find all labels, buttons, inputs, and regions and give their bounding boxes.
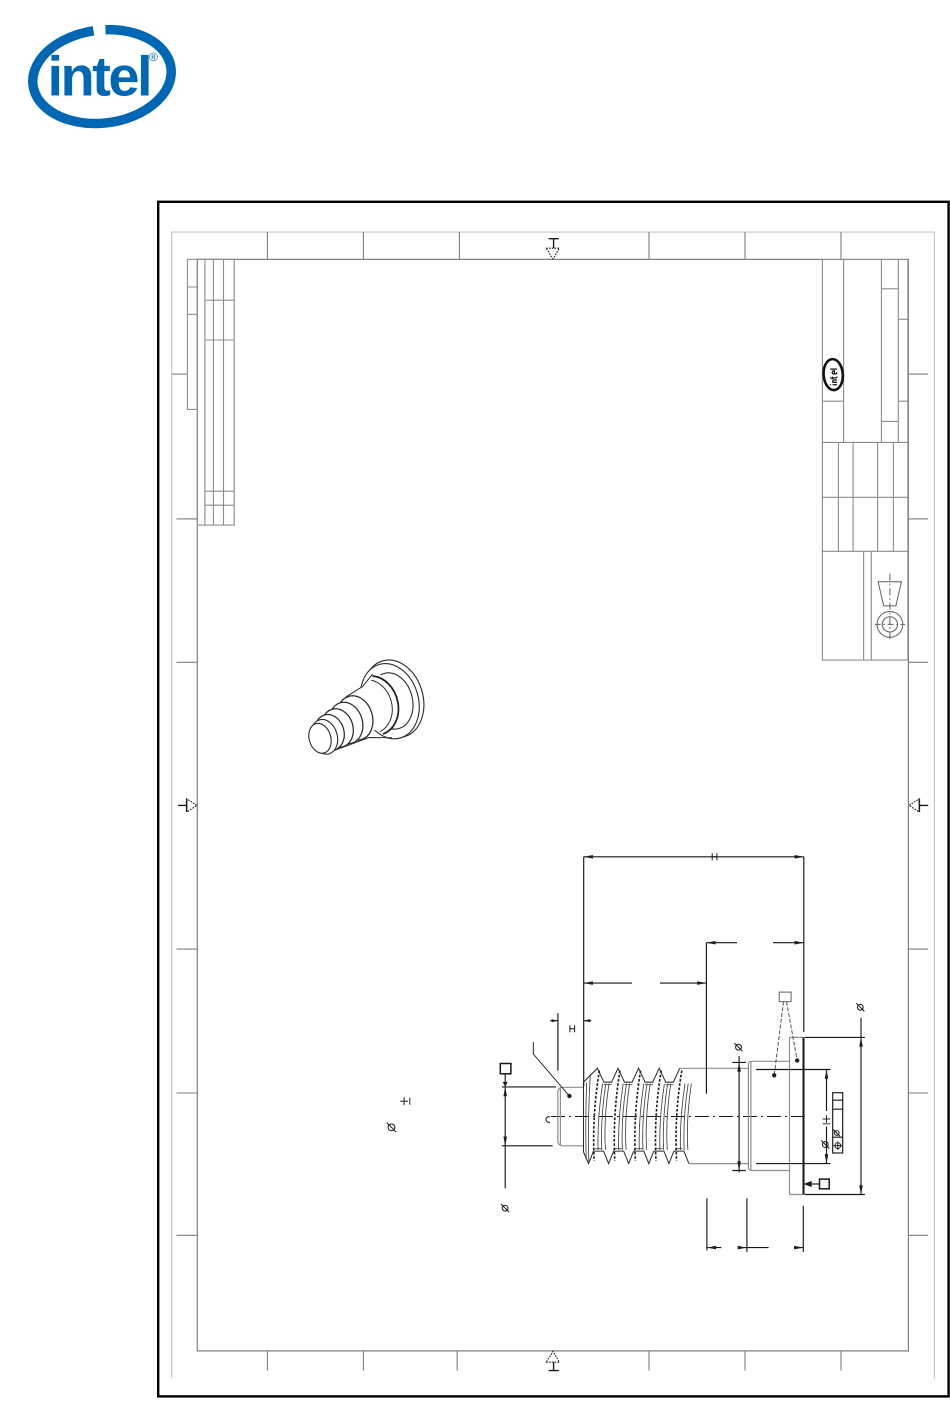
- svg-text:®: ®: [149, 50, 158, 64]
- svg-text:intel: intel: [48, 45, 151, 108]
